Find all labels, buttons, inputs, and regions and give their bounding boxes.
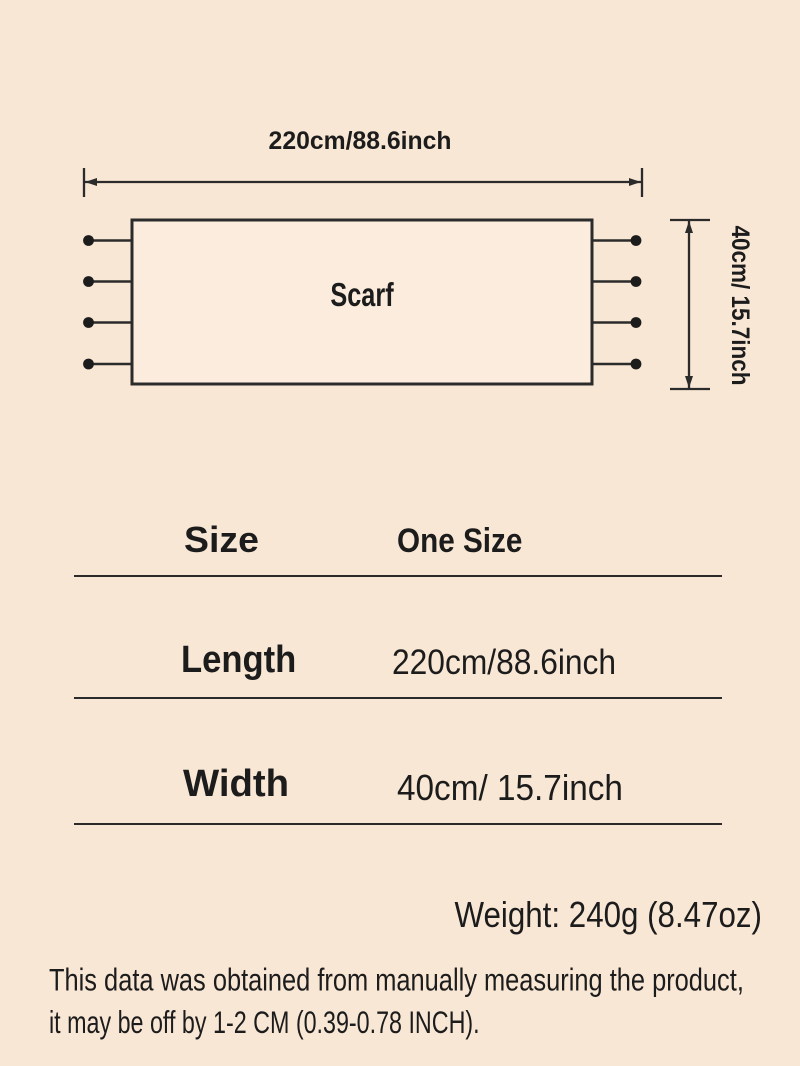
svg-text:Weight: 240g (8.47oz): Weight: 240g (8.47oz)	[454, 895, 762, 936]
svg-text:220cm/88.6inch: 220cm/88.6inch	[392, 644, 616, 683]
svg-text:220cm/88.6inch: 220cm/88.6inch	[269, 127, 452, 155]
svg-text:Size: Size	[184, 520, 259, 560]
svg-text:One Size: One Size	[397, 521, 522, 559]
svg-text:40cm/ 15.7inch: 40cm/ 15.7inch	[397, 768, 623, 809]
svg-text:40cm/ 15.7inch: 40cm/ 15.7inch	[726, 226, 754, 386]
svg-text:Scarf: Scarf	[330, 277, 393, 314]
svg-text:it may be off by 1-2 CM (0.39-: it may be off by 1-2 CM (0.39-0.78 INCH)…	[49, 1005, 480, 1040]
svg-text:Width: Width	[183, 762, 289, 805]
svg-text:This data was obtained from ma: This data was obtained from manually mea…	[49, 963, 744, 998]
svg-text:Length: Length	[181, 638, 296, 681]
